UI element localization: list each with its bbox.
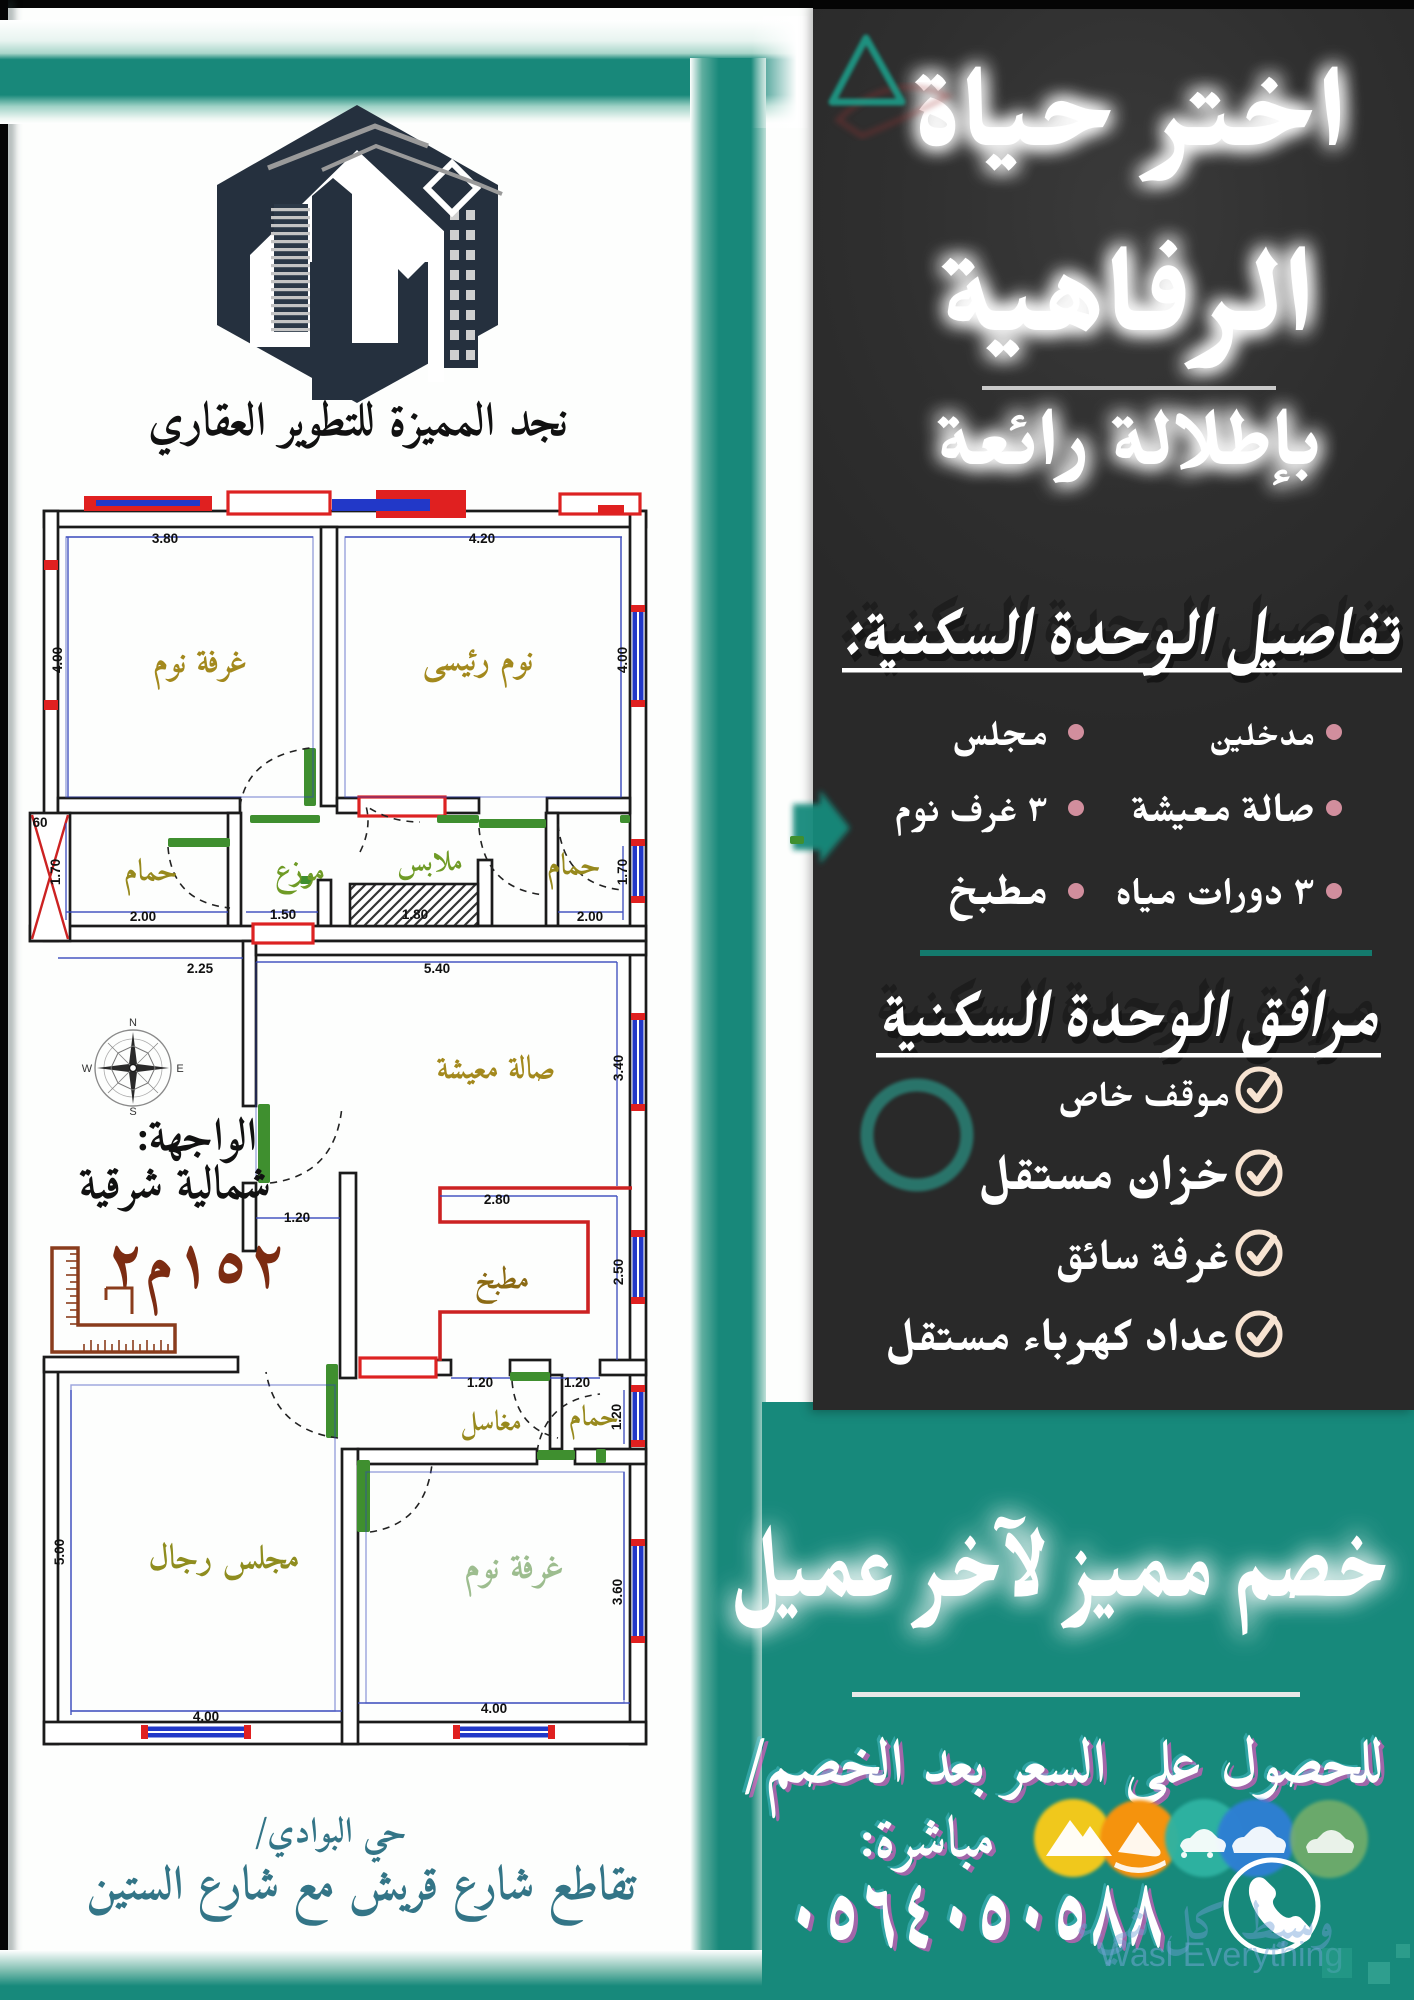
svg-text:3.40: 3.40	[611, 1055, 626, 1081]
svg-text:1.70: 1.70	[48, 859, 63, 885]
svg-text:2.80: 2.80	[484, 1192, 510, 1207]
svg-text:2.25: 2.25	[187, 961, 214, 976]
svg-text:1.20: 1.20	[284, 1210, 310, 1225]
svg-text:Wasl Everything: Wasl Everything	[1099, 1936, 1343, 1974]
svg-text:4.00: 4.00	[193, 1709, 219, 1724]
svg-text:3.60: 3.60	[610, 1579, 625, 1605]
svg-text:2.00: 2.00	[130, 909, 156, 924]
svg-text:2.00: 2.00	[577, 909, 603, 924]
svg-text:4.20: 4.20	[469, 531, 495, 546]
svg-text:4.00: 4.00	[615, 647, 630, 673]
svg-text:E: E	[176, 1063, 183, 1075]
svg-text:1.70: 1.70	[615, 859, 630, 885]
svg-text:4.00: 4.00	[50, 647, 65, 673]
svg-text:2.50: 2.50	[611, 1259, 626, 1285]
svg-text:1.20: 1.20	[564, 1375, 590, 1390]
svg-text:N: N	[129, 1017, 137, 1029]
svg-text:W: W	[82, 1063, 93, 1075]
svg-text:60: 60	[32, 815, 47, 830]
svg-text:5.00: 5.00	[52, 1539, 67, 1565]
svg-text:S: S	[129, 1106, 136, 1118]
svg-text:1.80: 1.80	[402, 907, 428, 922]
svg-text:3.80: 3.80	[152, 531, 178, 546]
svg-text:4.00: 4.00	[481, 1701, 507, 1716]
svg-text:5.40: 5.40	[424, 961, 450, 976]
svg-text:1.20: 1.20	[467, 1375, 493, 1390]
svg-text:1.50: 1.50	[270, 907, 296, 922]
svg-text:1.20: 1.20	[609, 1404, 624, 1430]
